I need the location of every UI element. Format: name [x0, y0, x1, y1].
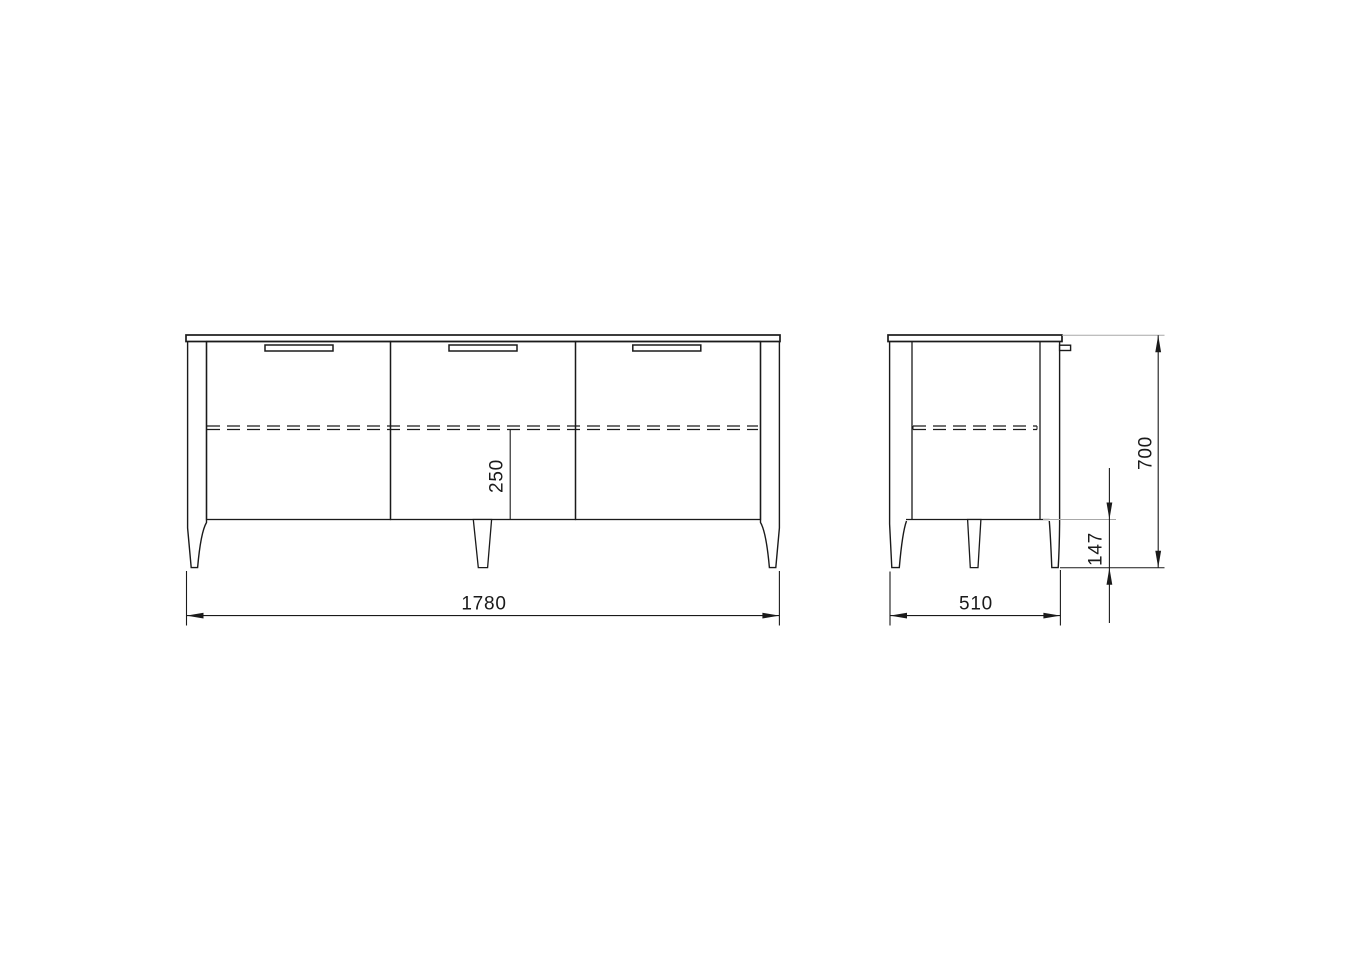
side-back-panel-and-leg — [890, 342, 907, 568]
arrowhead-bottom — [1155, 551, 1161, 568]
arrowhead-left — [187, 613, 204, 619]
front-center-leg — [473, 520, 491, 568]
front-door-right — [576, 342, 761, 520]
dimension-label-side-depth: 510 — [959, 595, 993, 614]
front-door-left — [207, 342, 391, 520]
arrowhead-right — [1043, 613, 1060, 619]
dimension-label-total-height: 700 — [1137, 436, 1156, 470]
arrowhead-up — [1107, 568, 1113, 585]
front-left-side-and-leg — [188, 342, 207, 568]
side-tabletop — [888, 335, 1062, 342]
arrowhead-down — [1107, 503, 1113, 520]
arrowhead-right — [762, 613, 779, 619]
front-handle-left — [265, 345, 333, 351]
side-view — [888, 335, 1071, 568]
drawing-canvas: 1780 250 510 700 147 — [0, 0, 1350, 960]
arrowhead-left — [890, 613, 907, 619]
technical-drawing — [0, 0, 1350, 960]
dimension-label-leg-height: 147 — [1087, 532, 1106, 566]
front-door-center — [391, 342, 576, 520]
front-handle-right — [633, 345, 701, 351]
front-tabletop — [186, 335, 780, 342]
side-middle-leg — [968, 520, 981, 568]
front-right-side-and-leg — [761, 342, 780, 568]
front-handle-center — [449, 345, 517, 351]
dimension-lines — [187, 335, 1165, 625]
arrowhead-top — [1155, 335, 1161, 352]
dimension-label-front-width: 1780 — [461, 595, 506, 614]
front-view — [186, 335, 780, 568]
side-handle-tab — [1060, 345, 1071, 350]
dimension-label-shelf-drop: 250 — [488, 459, 507, 493]
side-door-and-front-leg — [1049, 342, 1059, 568]
